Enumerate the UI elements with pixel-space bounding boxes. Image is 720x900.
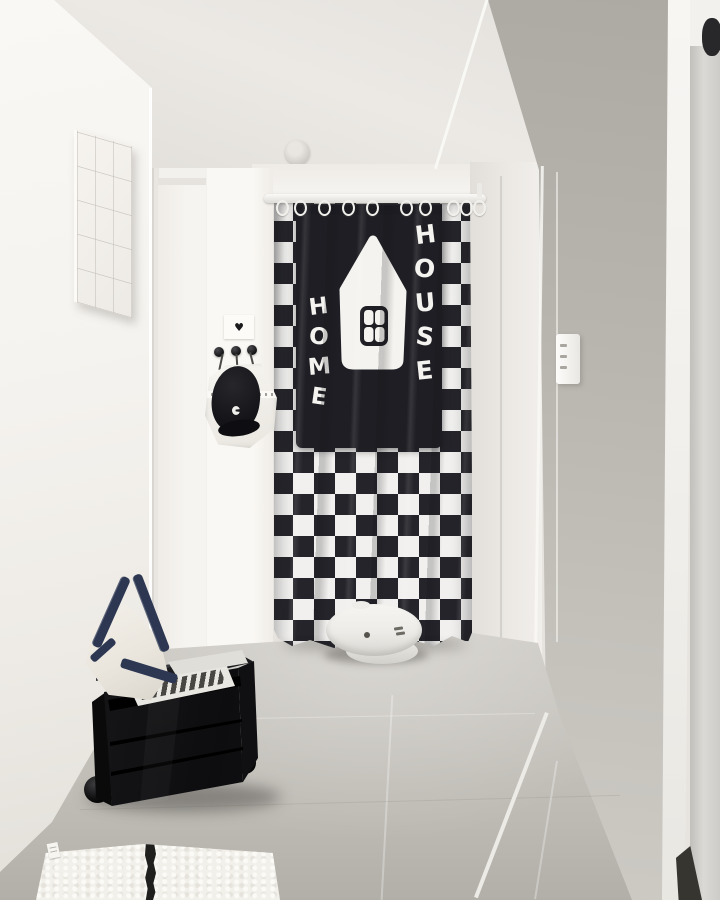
curtain-ring [460,200,473,216]
hallway-photo: HOME HOUSE ♥ [0,0,720,900]
curtain-ring [419,200,432,216]
word-house: HOUSE [410,222,440,383]
curtain-black-panel: HOME HOUSE [296,204,442,448]
rug-stripe [144,844,156,900]
house-window [360,306,388,346]
switch-button [560,344,567,347]
ceiling-sensor-icon [285,140,310,165]
cart-shadow [86,782,281,812]
curtain-ring [294,200,307,216]
refrigerator [690,0,720,900]
left-wall-corner-edge [149,88,152,648]
heart-icon: ♥ [234,321,244,334]
robot-bumper [352,601,370,609]
curtain-ring [276,200,289,216]
curtain-ring [400,200,413,216]
checkered-curtain: HOME HOUSE [272,200,472,650]
left-door [158,178,206,651]
light-switch [556,334,580,384]
switch-button [560,366,567,369]
right-door-recess [470,162,542,654]
tile-art-panel [74,130,132,319]
switch-button [560,355,567,358]
curtain-ring [366,200,379,216]
right-wall-panel-line [556,172,558,642]
house-illustration [338,234,408,370]
object-on-fridge [702,18,720,56]
rod-bracket [477,183,482,197]
right-recess-frame-line [500,176,502,638]
robot-button [364,632,370,638]
curtain-ring [342,200,355,216]
word-home: HOME [304,296,334,409]
robot-vacuum [326,604,422,656]
rug [36,844,280,900]
heart-card: ♥ [224,315,254,339]
curtain-ring [447,200,460,216]
curtain-ring [473,200,486,216]
curtain-ring [318,200,331,216]
